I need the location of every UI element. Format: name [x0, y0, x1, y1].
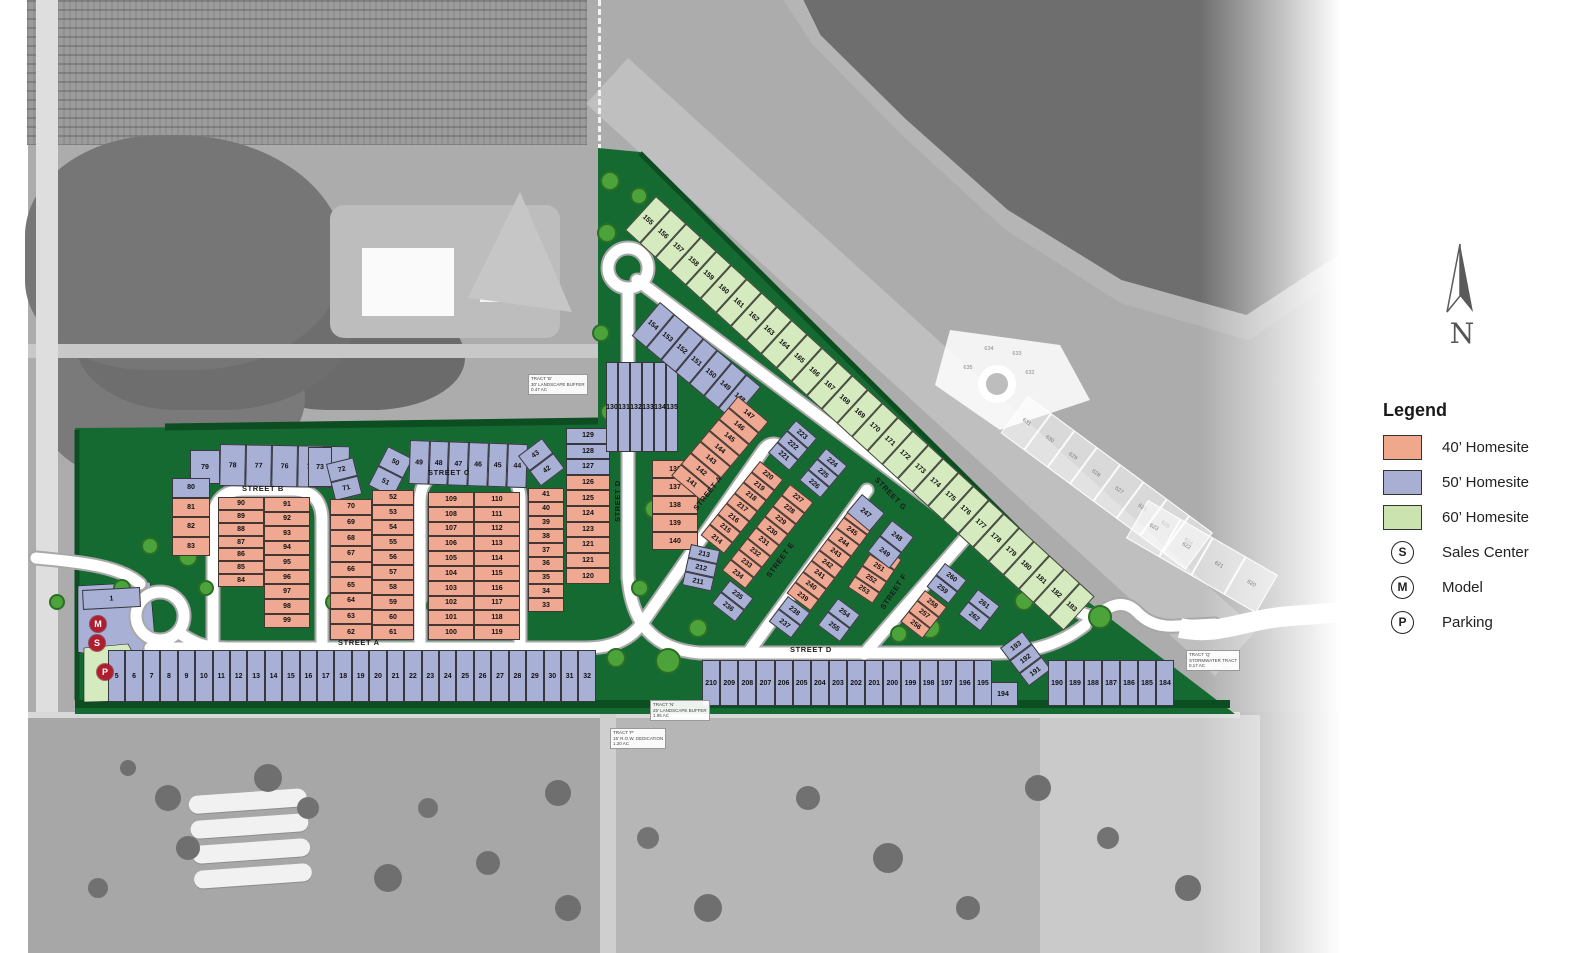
lot-31[interactable]: 31: [561, 650, 578, 702]
lot-113[interactable]: 113: [474, 536, 520, 551]
lot-94[interactable]: 94: [264, 541, 310, 556]
model-icon: M: [1391, 576, 1414, 599]
lot-130[interactable]: 130: [606, 362, 618, 452]
lot-200[interactable]: 200: [883, 660, 901, 706]
lot-52[interactable]: 52: [372, 490, 414, 505]
lot-97[interactable]: 97: [264, 584, 310, 599]
lot-24[interactable]: 24: [439, 650, 456, 702]
lot-92[interactable]: 92: [264, 512, 310, 527]
lot-102[interactable]: 102: [428, 596, 474, 611]
lot-60[interactable]: 60: [372, 610, 414, 625]
swatch-40-homesite: [1383, 435, 1422, 460]
lot-202[interactable]: 202: [847, 660, 865, 706]
lot-124[interactable]: 124: [566, 506, 610, 522]
site-plan-page: 1 56789101112131415161718192021222324252…: [0, 0, 1586, 953]
lot-118[interactable]: 118: [474, 610, 520, 625]
lot-86[interactable]: 86: [218, 548, 264, 561]
lot-184[interactable]: 184: [1156, 660, 1174, 706]
street-d-label-vertical: STREET D: [613, 480, 622, 522]
block-street-a-south-row: 5678910111213141516171819202122232425262…: [108, 650, 596, 702]
lot-134[interactable]: 134: [654, 362, 666, 452]
lot-114[interactable]: 114: [474, 551, 520, 566]
lot-127[interactable]: 127: [566, 459, 610, 475]
lot-1[interactable]: 1: [82, 587, 141, 610]
lot-85[interactable]: 85: [218, 561, 264, 574]
block-street-c-inner-right: 110111112113114115116117118119: [474, 492, 520, 640]
lot-20[interactable]: 20: [369, 650, 386, 702]
lot-197[interactable]: 197: [938, 660, 956, 706]
lot-76[interactable]: 76: [271, 445, 298, 487]
legend-panel: Legend 40’ Homesite 50’ Homesite 60’ Hom…: [1383, 400, 1573, 645]
sales-center-icon: S: [1391, 541, 1414, 564]
lot-39[interactable]: 39: [528, 516, 564, 530]
lot-12[interactable]: 12: [230, 650, 247, 702]
lot-198[interactable]: 198: [920, 660, 938, 706]
lot-17[interactable]: 17: [317, 650, 334, 702]
block-column-33-41: 414039383736353433: [528, 488, 564, 612]
lot-107[interactable]: 107: [428, 522, 474, 537]
lot-67[interactable]: 67: [330, 546, 372, 562]
lot-54[interactable]: 54: [372, 520, 414, 535]
lot-100[interactable]: 100: [428, 625, 474, 640]
swatch-50-homesite: [1383, 470, 1422, 495]
lot-131[interactable]: 131: [618, 362, 630, 452]
lot-53[interactable]: 53: [372, 505, 414, 520]
parking-marker[interactable]: P: [97, 664, 113, 680]
lot-58[interactable]: 58: [372, 580, 414, 595]
lot-21[interactable]: 21: [387, 650, 404, 702]
lot-189[interactable]: 189: [1066, 660, 1084, 706]
lot-101[interactable]: 101: [428, 610, 474, 625]
lot-119[interactable]: 119: [474, 625, 520, 640]
lot-69[interactable]: 69: [330, 515, 372, 531]
lot-111[interactable]: 111: [474, 507, 520, 522]
future-lot-632: 632: [1025, 370, 1034, 376]
lot-204[interactable]: 204: [811, 660, 829, 706]
legend-item-sales-center: S Sales Center: [1383, 540, 1573, 564]
lot-133[interactable]: 133: [642, 362, 654, 452]
lot-109[interactable]: 109: [428, 492, 474, 507]
lot-201[interactable]: 201: [865, 660, 883, 706]
lot-110[interactable]: 110: [474, 492, 520, 507]
lot-205[interactable]: 205: [793, 660, 811, 706]
model-marker[interactable]: M: [90, 616, 106, 632]
lot-15[interactable]: 15: [282, 650, 299, 702]
lot-22[interactable]: 22: [404, 650, 421, 702]
tract-n-label: TRACT 'N'25' LANDSCAPE BUFFER1.95 AC: [650, 700, 710, 721]
lot-26[interactable]: 26: [474, 650, 491, 702]
future-lot-633: 633: [1012, 351, 1021, 357]
lot-66[interactable]: 66: [330, 562, 372, 578]
lot-195[interactable]: 195: [974, 660, 992, 706]
lot-63[interactable]: 63: [330, 609, 372, 625]
lot-59[interactable]: 59: [372, 595, 414, 610]
street-d-label: STREET D: [790, 645, 832, 654]
lot-207[interactable]: 207: [756, 660, 774, 706]
lot-19[interactable]: 19: [352, 650, 369, 702]
lot-55[interactable]: 55: [372, 535, 414, 550]
lot-99[interactable]: 99: [264, 614, 310, 629]
lot-41[interactable]: 41: [528, 488, 564, 502]
lot-135[interactable]: 135: [666, 362, 678, 452]
legend-item-parking: P Parking: [1383, 610, 1573, 634]
lot-185[interactable]: 185: [1138, 660, 1156, 706]
lot-89[interactable]: 89: [218, 510, 264, 523]
lot-88[interactable]: 88: [218, 523, 264, 536]
lot-121[interactable]: 121: [566, 553, 610, 569]
block-street-d-south-row: 2102092082072062052042032022012001991981…: [702, 660, 992, 706]
lot-82[interactable]: 82: [172, 517, 210, 537]
lot-11[interactable]: 11: [213, 650, 230, 702]
lot-38[interactable]: 38: [528, 529, 564, 543]
legend-item-40-homesite: 40’ Homesite: [1383, 435, 1573, 459]
lot-23[interactable]: 23: [422, 650, 439, 702]
block-lots-44-49: 494847464544: [408, 440, 527, 488]
lot-49[interactable]: 49: [408, 440, 429, 485]
legend-item-model: M Model: [1383, 575, 1573, 599]
lot-120[interactable]: 120: [566, 568, 610, 584]
lot-64[interactable]: 64: [330, 593, 372, 609]
lot-28[interactable]: 28: [509, 650, 526, 702]
legend-item-50-homesite: 50’ Homesite: [1383, 470, 1573, 494]
lot-108[interactable]: 108: [428, 507, 474, 522]
lot-80[interactable]: 80: [172, 478, 210, 498]
north-arrow: N: [1432, 238, 1492, 350]
lot-8[interactable]: 8: [160, 650, 177, 702]
lot-46[interactable]: 46: [467, 442, 488, 487]
lot-115[interactable]: 115: [474, 566, 520, 581]
lot-45[interactable]: 45: [487, 443, 508, 488]
block-column-62-70: 706968676665646362: [330, 499, 372, 640]
lot-48[interactable]: 48: [428, 441, 449, 486]
legend-title: Legend: [1383, 400, 1573, 421]
lot-25[interactable]: 25: [456, 650, 473, 702]
lot-116[interactable]: 116: [474, 581, 520, 596]
block-left-edge-80-83: 80818283: [172, 478, 210, 556]
lot-90[interactable]: 90: [218, 497, 264, 510]
lot-104[interactable]: 104: [428, 566, 474, 581]
lot-199[interactable]: 199: [901, 660, 919, 706]
lot-27[interactable]: 27: [491, 650, 508, 702]
parking-icon: P: [1391, 611, 1414, 634]
lot-57[interactable]: 57: [372, 565, 414, 580]
lot-194[interactable]: 194: [988, 682, 1018, 706]
north-arrow-icon: [1432, 238, 1492, 318]
lot-14[interactable]: 14: [265, 650, 282, 702]
lot-47[interactable]: 47: [448, 441, 469, 486]
lot-196[interactable]: 196: [956, 660, 974, 706]
tract-q-label: TRACT 'Q'STORMWATER TRACT0.17 AC: [1186, 650, 1240, 671]
swatch-60-homesite: [1383, 505, 1422, 530]
lot-16[interactable]: 16: [300, 650, 317, 702]
lot-121[interactable]: 121: [566, 537, 610, 553]
lot-105[interactable]: 105: [428, 551, 474, 566]
lot-9[interactable]: 9: [178, 650, 195, 702]
block-cluster-130-135: 130131132133134135: [606, 362, 678, 452]
lot-65[interactable]: 65: [330, 577, 372, 593]
lot-206[interactable]: 206: [775, 660, 793, 706]
lot-139[interactable]: 139: [652, 514, 698, 532]
lot-13[interactable]: 13: [247, 650, 264, 702]
lot-29[interactable]: 29: [526, 650, 543, 702]
lot-30[interactable]: 30: [544, 650, 561, 702]
lot-123[interactable]: 123: [566, 522, 610, 538]
lot-93[interactable]: 93: [264, 526, 310, 541]
lot-78[interactable]: 78: [219, 444, 246, 486]
lot-128[interactable]: 128: [566, 444, 610, 460]
lot-32[interactable]: 32: [578, 650, 595, 702]
lot-98[interactable]: 98: [264, 599, 310, 614]
lot-35[interactable]: 35: [528, 571, 564, 585]
tract-b-label: TRACT 'B'30' LANDSCAPE BUFFER0.47 AC: [528, 374, 588, 395]
future-lot-634: 634: [984, 346, 993, 352]
lot-7[interactable]: 7: [143, 650, 160, 702]
lot-190[interactable]: 190: [1048, 660, 1066, 706]
lot-117[interactable]: 117: [474, 596, 520, 611]
lot-103[interactable]: 103: [428, 581, 474, 596]
lot-70[interactable]: 70: [330, 499, 372, 515]
lot-209[interactable]: 209: [720, 660, 738, 706]
block-lot-194: 194: [988, 682, 1018, 706]
lot-40[interactable]: 40: [528, 502, 564, 516]
lot-203[interactable]: 203: [829, 660, 847, 706]
lot-81[interactable]: 81: [172, 498, 210, 518]
lot-87[interactable]: 87: [218, 536, 264, 549]
lot-18[interactable]: 18: [334, 650, 351, 702]
lot-132[interactable]: 132: [630, 362, 642, 452]
street-a-label: STREET A: [338, 638, 380, 647]
street-c-label: STREET C: [428, 468, 470, 477]
sales-center-marker[interactable]: S: [89, 635, 105, 651]
future-lot-635: 635: [963, 365, 972, 371]
lot-106[interactable]: 106: [428, 536, 474, 551]
legend-item-60-homesite: 60’ Homesite: [1383, 505, 1573, 529]
lot-84[interactable]: 84: [218, 574, 264, 587]
street-b-label: STREET B: [242, 484, 284, 493]
lot-112[interactable]: 112: [474, 522, 520, 537]
lot-125[interactable]: 125: [566, 490, 610, 506]
block-street-b-inner-right: 919293949596979899: [264, 497, 310, 628]
block-street-c-inner-left: 109108107106105104103102101100: [428, 492, 474, 640]
lot-83[interactable]: 83: [172, 537, 210, 557]
lot-188[interactable]: 188: [1084, 660, 1102, 706]
block-row-184-190: 190189188187186185184: [1048, 660, 1174, 706]
lot-33[interactable]: 33: [528, 598, 564, 612]
block-column-52-61: 52535455565758596061: [372, 490, 414, 640]
lot-56[interactable]: 56: [372, 550, 414, 565]
block-street-b-inner-left: 90898887868584: [218, 497, 264, 587]
lot-186[interactable]: 186: [1120, 660, 1138, 706]
lot-208[interactable]: 208: [738, 660, 756, 706]
lot-34[interactable]: 34: [528, 584, 564, 598]
lot-95[interactable]: 95: [264, 555, 310, 570]
lot-36[interactable]: 36: [528, 557, 564, 571]
lot-37[interactable]: 37: [528, 543, 564, 557]
lot-68[interactable]: 68: [330, 530, 372, 546]
lot-6[interactable]: 6: [125, 650, 142, 702]
block-sales-lot-1: 1: [82, 587, 141, 610]
lot-187[interactable]: 187: [1102, 660, 1120, 706]
lot-10[interactable]: 10: [195, 650, 212, 702]
lot-77[interactable]: 77: [245, 444, 272, 486]
lot-126[interactable]: 126: [566, 475, 610, 491]
lot-129[interactable]: 129: [566, 428, 610, 444]
block-column-120-129: 129128127126125124123121121120: [566, 428, 610, 584]
tract-p-label: TRACT 'P'15' R.O.W. DEDICATION1.20 AC: [610, 728, 666, 749]
lot-96[interactable]: 96: [264, 570, 310, 585]
north-letter: N: [1432, 317, 1492, 350]
lot-91[interactable]: 91: [264, 497, 310, 512]
